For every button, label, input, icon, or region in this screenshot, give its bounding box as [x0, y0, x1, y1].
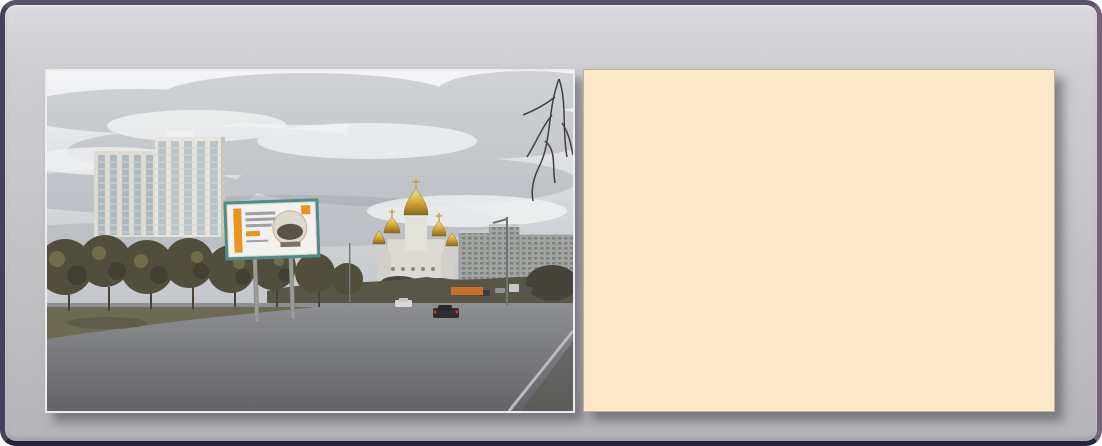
ad-orange-stripe	[233, 209, 243, 253]
location-passport-card	[0, 0, 1102, 446]
street-scene	[47, 71, 573, 411]
location-map	[583, 69, 1055, 412]
location-photo	[45, 69, 575, 413]
kiosk	[451, 287, 483, 295]
ad-logo	[301, 205, 310, 214]
